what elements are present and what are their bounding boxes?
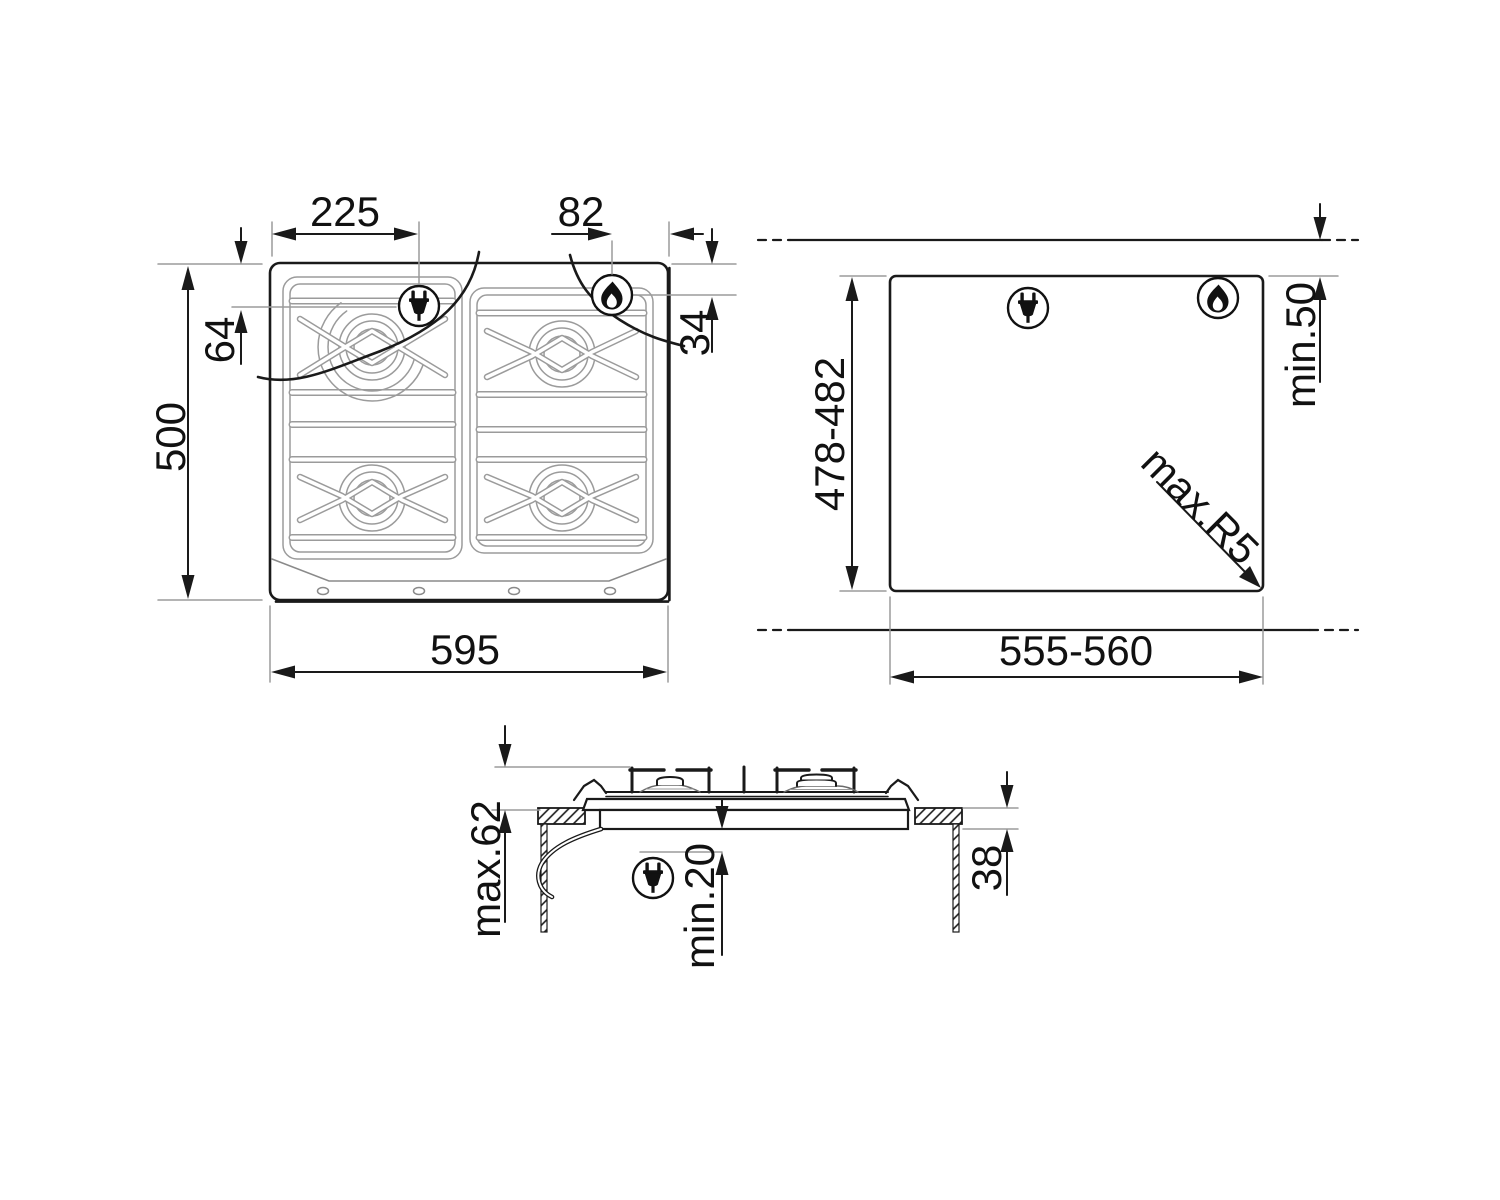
drawing-canvas bbox=[0, 0, 1500, 1200]
dim-clearance-below: min.20 bbox=[677, 796, 723, 1016]
hob-top-view bbox=[158, 222, 736, 682]
plug-icon bbox=[399, 286, 439, 326]
dim-plug-from-left: 225 bbox=[235, 189, 455, 235]
side-section-view bbox=[492, 726, 1018, 955]
dim-gas-from-back: 34 bbox=[672, 223, 718, 443]
worktop-right bbox=[915, 808, 962, 824]
dim-rear-clearance: min.50 bbox=[1278, 235, 1324, 455]
dim-overall-height: max.62 bbox=[463, 759, 509, 979]
dim-cutout-width: 555-560 bbox=[966, 628, 1186, 674]
dim-plug-from-back: 64 bbox=[197, 230, 243, 450]
dim-gas-from-right: 82 bbox=[471, 189, 691, 235]
flame-icon bbox=[592, 275, 632, 315]
hob-lower-box bbox=[600, 810, 908, 829]
flame-icon bbox=[1198, 278, 1238, 318]
dim-hob-depth: 500 bbox=[148, 327, 194, 547]
worktop-left bbox=[538, 808, 585, 824]
hob-installation-drawing: 225 82 64 34 500 595 478-482 min.50 max.… bbox=[0, 0, 1500, 1200]
dim-hob-width: 595 bbox=[355, 627, 575, 673]
burner-section bbox=[640, 775, 858, 793]
plug-icon bbox=[1008, 288, 1048, 328]
power-cable bbox=[538, 829, 601, 897]
dim-cutout-depth: 478-482 bbox=[807, 324, 853, 544]
dim-recess-depth: 38 bbox=[964, 758, 1010, 978]
plug-icon bbox=[633, 858, 673, 898]
